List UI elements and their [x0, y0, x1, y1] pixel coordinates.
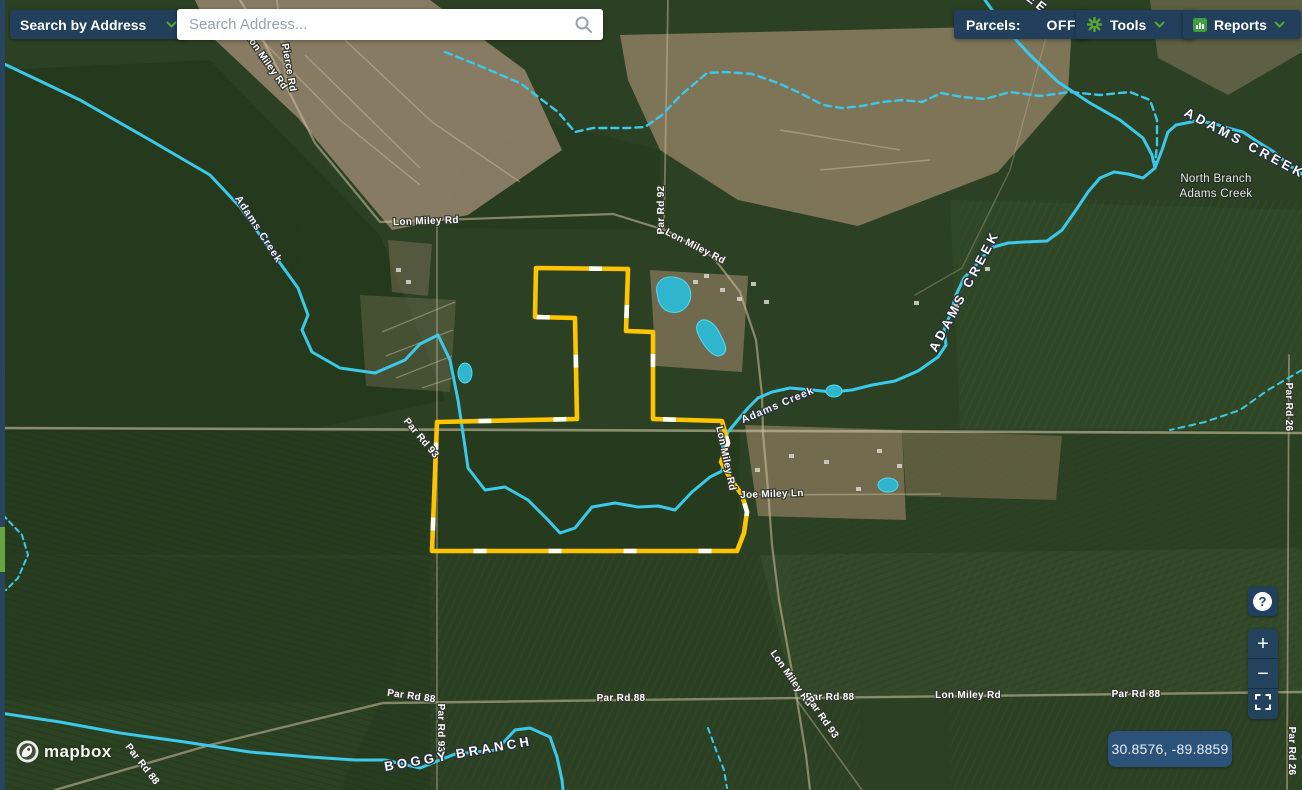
zoom-out-button[interactable]: − [1248, 659, 1278, 689]
reports-label: Reports [1214, 17, 1267, 33]
tools-menu-button[interactable]: Tools [1076, 10, 1195, 39]
satellite-map[interactable]: Lon Miley RdPierce RdLon Miley RdPar Rd … [0, 0, 1302, 790]
chevron-down-icon [1274, 21, 1285, 28]
search-input[interactable] [177, 16, 574, 33]
map-label-lon-miley-rd-w: Lon Miley Rd [393, 215, 459, 228]
fullscreen-button[interactable] [1248, 689, 1278, 719]
left-edge-bar [0, 0, 5, 790]
fullscreen-icon [1255, 694, 1271, 710]
search-icon[interactable] [574, 15, 593, 34]
pond-small-se [878, 478, 898, 492]
pond-large [657, 277, 691, 313]
help-button[interactable]: ? [1248, 587, 1277, 616]
chevron-down-icon [166, 21, 177, 28]
coordinates-readout: 30.8576, -89.8859 [1108, 731, 1232, 767]
reports-menu-button[interactable]: Reports [1183, 10, 1301, 39]
left-edge-green-handle[interactable] [0, 527, 5, 572]
map-label-par-rd-88-mid: Par Rd 88 [597, 693, 646, 704]
pond-small-mid [826, 385, 842, 397]
map-label-north-branch-line2: Adams Creek [1180, 188, 1253, 200]
parcels-label: Parcels: [966, 17, 1020, 33]
mapbox-logo[interactable]: mapbox [16, 740, 112, 763]
zoom-controls: + − [1248, 629, 1278, 719]
gear-icon [1087, 17, 1102, 32]
map-label-lon-miley-rd-s2: Lon Miley Rd [935, 690, 1001, 701]
parcels-state: OFF [1047, 17, 1077, 33]
map-label-par-rd-26-se: Par Rd 26 [1286, 727, 1297, 776]
map-label-par-rd-88-e: Par Rd 88 [1112, 689, 1161, 700]
report-chart-icon [1193, 18, 1207, 32]
map-label-joe-miley-ln: Joe Miley Ln [740, 488, 804, 501]
tools-label: Tools [1110, 17, 1146, 33]
search-address-container [177, 9, 603, 40]
map-label-par-rd-26-mid: Par Rd 26 [1283, 383, 1294, 432]
map-label-north-branch-line1: North Branch [1180, 173, 1251, 185]
zoom-in-button[interactable]: + [1248, 629, 1278, 659]
parcels-toggle[interactable]: Parcels: OFF [954, 10, 1088, 39]
mapbox-icon [16, 740, 39, 763]
chevron-down-icon [1154, 21, 1165, 28]
help-question-icon: ? [1253, 592, 1272, 611]
search-by-address-label: Search by Address [20, 17, 146, 33]
map-label-par-rd-92: Par Rd 92 [656, 185, 667, 234]
map-label-par-rd-93-s: Par Rd 93 [435, 704, 446, 753]
mapbox-wordmark: mapbox [44, 742, 112, 762]
pond-small-west [458, 363, 472, 383]
search-by-address-dropdown[interactable]: Search by Address [10, 10, 187, 39]
